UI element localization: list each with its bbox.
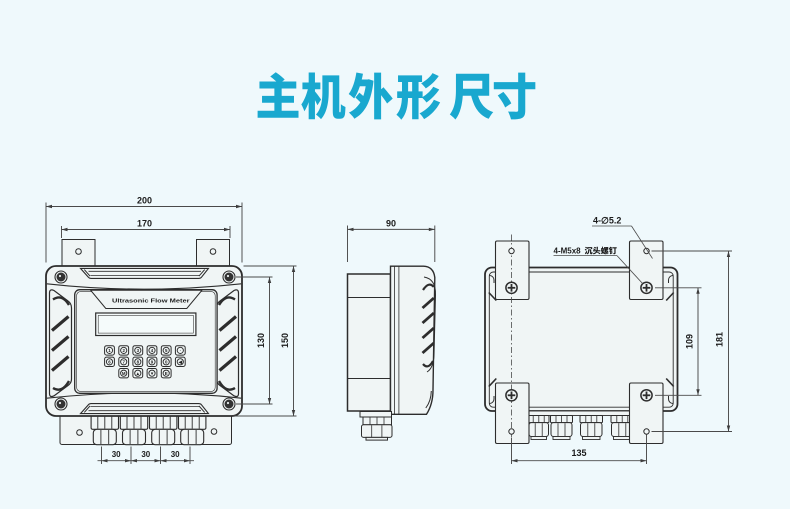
svg-text:130: 130 bbox=[256, 333, 266, 348]
svg-text:4-M5x8: 4-M5x8 bbox=[554, 247, 582, 256]
svg-text:170: 170 bbox=[137, 219, 152, 229]
svg-text:109: 109 bbox=[685, 334, 695, 349]
svg-text:90: 90 bbox=[386, 218, 396, 228]
svg-text:Ultrasonic Flow Meter: Ultrasonic Flow Meter bbox=[112, 299, 191, 305]
svg-text:150: 150 bbox=[280, 333, 290, 348]
svg-text:135: 135 bbox=[571, 448, 586, 458]
svg-text:30: 30 bbox=[112, 450, 121, 459]
svg-text:·: · bbox=[180, 348, 181, 353]
svg-text:30: 30 bbox=[171, 450, 180, 459]
svg-text:4-∅5.2: 4-∅5.2 bbox=[593, 216, 621, 226]
svg-text:M: M bbox=[122, 371, 126, 376]
svg-text:200: 200 bbox=[137, 196, 152, 206]
svg-text:▲: ▲ bbox=[136, 371, 140, 376]
svg-text:▼: ▼ bbox=[150, 371, 154, 376]
svg-text:30: 30 bbox=[141, 450, 150, 459]
svg-text:◀: ◀ bbox=[178, 359, 183, 364]
svg-text:E: E bbox=[165, 371, 168, 376]
svg-text:181: 181 bbox=[715, 332, 725, 347]
